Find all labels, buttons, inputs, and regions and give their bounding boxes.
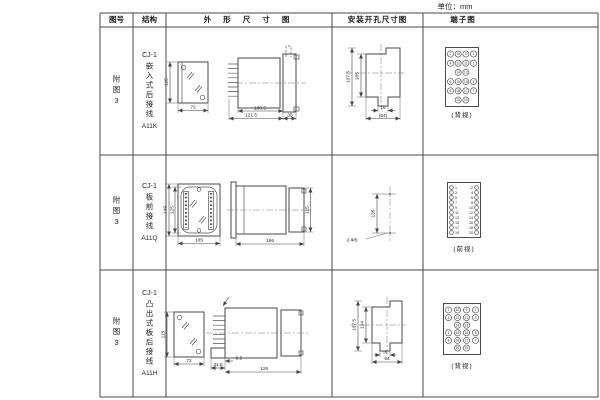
svg-text:18: 18 xyxy=(456,339,460,343)
svg-text:10: 10 xyxy=(456,308,460,312)
model-code-label: A11H xyxy=(142,370,158,377)
dim-mount-width: (64) xyxy=(379,113,388,119)
dim-hole-spacing: 135 xyxy=(371,209,377,217)
svg-text:20: 20 xyxy=(456,346,460,350)
mount-type-label: 板前接线 xyxy=(144,193,155,231)
mount-type-label: 嵌入式后接线 xyxy=(144,62,155,119)
svg-text:15: 15 xyxy=(464,80,468,84)
svg-text:1: 1 xyxy=(473,52,475,56)
svg-text:10: 10 xyxy=(456,52,460,56)
svg-text:4: 4 xyxy=(448,316,450,320)
terminal-diagram-row2: 1357911131517192468101214161820 xyxy=(447,182,481,238)
svg-text:10: 10 xyxy=(469,206,473,210)
dim-mount-tab: 16 xyxy=(380,105,386,111)
svg-text:1: 1 xyxy=(475,308,477,312)
fig-no-label: 附图3 xyxy=(111,317,122,350)
row3-mounting-drawing: 107.5 104 16 64 xyxy=(350,297,406,364)
svg-text:2: 2 xyxy=(448,308,450,312)
spec-sheet-page: 115 72 100.5 121.5 35 xyxy=(0,0,600,400)
header-outline: 外 形 尺 寸 图 xyxy=(166,13,332,27)
svg-text:18: 18 xyxy=(469,226,473,230)
row2-mounting-drawing: 135 2-Φ5 xyxy=(347,186,396,244)
svg-text:14: 14 xyxy=(456,71,460,75)
row2-outline-drawing: 149 125 105 156 115 xyxy=(163,182,314,246)
header-terminal: 端子图 xyxy=(423,13,503,27)
terminal-diagram-row1: 2109141211314136161558181772019 xyxy=(445,47,479,107)
model-code-label: A11K xyxy=(142,123,157,130)
svg-text:8: 8 xyxy=(450,89,452,93)
unit-label: 单位：mm xyxy=(420,1,490,12)
terminal-diagram-row3: 2109141211314136161558181772019 xyxy=(443,303,481,355)
svg-text:20: 20 xyxy=(456,98,460,102)
structure-cell-row3: CJ-1 凸出式板后接线 A11H xyxy=(133,270,166,397)
row3-outline-drawing: 115 72 9.5 31.5 126 xyxy=(161,297,309,374)
dim-front-width: 72 xyxy=(190,105,196,111)
svg-text:11: 11 xyxy=(464,61,468,65)
svg-text:8: 8 xyxy=(471,201,473,205)
row1-outline-drawing: 115 72 100.5 121.5 35 xyxy=(164,46,307,120)
svg-text:7: 7 xyxy=(475,339,477,343)
dim-depth: 126 xyxy=(260,366,268,372)
header-fig-no: 图号 xyxy=(100,13,133,27)
svg-text:6: 6 xyxy=(450,80,452,84)
svg-text:12: 12 xyxy=(456,316,460,320)
svg-text:15: 15 xyxy=(465,331,469,335)
drawing-layer: 115 72 100.5 121.5 35 xyxy=(0,0,600,400)
svg-text:7: 7 xyxy=(473,89,475,93)
svg-text:19: 19 xyxy=(464,98,468,102)
svg-text:8: 8 xyxy=(448,339,450,343)
svg-text:12: 12 xyxy=(456,61,460,65)
dim-mount-width: 64 xyxy=(384,356,390,362)
fig-no-label: 附图3 xyxy=(111,196,122,229)
dim-width: 105 xyxy=(195,238,203,244)
svg-text:19: 19 xyxy=(465,346,469,350)
svg-text:16: 16 xyxy=(469,221,473,225)
dim-height: 115 xyxy=(305,206,311,214)
svg-text:15: 15 xyxy=(455,221,459,225)
svg-text:13: 13 xyxy=(455,216,459,220)
svg-text:5: 5 xyxy=(475,331,477,335)
svg-text:4: 4 xyxy=(471,191,473,195)
svg-text:9: 9 xyxy=(465,52,467,56)
header-mounting: 安装开孔尺寸图 xyxy=(332,13,423,27)
dim-depth: 100.5 xyxy=(254,106,266,112)
terminal-view-label-row1: (背视) xyxy=(440,109,484,119)
svg-text:14: 14 xyxy=(469,216,473,220)
svg-text:2: 2 xyxy=(471,186,473,190)
svg-text:18: 18 xyxy=(456,89,460,93)
svg-text:16: 16 xyxy=(456,331,460,335)
structure-cell-row2: CJ-1 板前接线 A11Q xyxy=(133,155,166,270)
dim-front: 35 xyxy=(287,113,293,119)
dim-mount-tab: 16 xyxy=(383,351,387,355)
svg-text:1: 1 xyxy=(455,186,457,190)
svg-text:3: 3 xyxy=(475,316,477,320)
terminal-view-label-row3: (背视) xyxy=(440,360,484,370)
fig-no-label: 附图3 xyxy=(111,75,122,108)
svg-text:17: 17 xyxy=(464,89,468,93)
header-structure: 结构 xyxy=(133,13,166,27)
model-label: CJ-1 xyxy=(142,290,157,297)
mount-type-label: 凸出式板后接线 xyxy=(144,300,155,367)
model-code-label: A11Q xyxy=(141,235,157,242)
svg-text:16: 16 xyxy=(456,80,460,84)
fig-no-cell-row2: 附图3 xyxy=(100,155,133,270)
svg-text:11: 11 xyxy=(455,211,459,215)
dim-front-width: 72 xyxy=(186,358,192,364)
svg-text:19: 19 xyxy=(455,231,459,235)
svg-text:2: 2 xyxy=(450,52,452,56)
terminal-view-label-row2: (前视) xyxy=(442,243,486,253)
svg-text:5: 5 xyxy=(455,196,457,200)
structure-cell-row1: CJ-1 嵌入式后接线 A11K xyxy=(133,27,166,155)
dim-inner-h: 125 xyxy=(170,206,176,214)
dim-front: 31.5 xyxy=(213,362,223,368)
svg-text:12: 12 xyxy=(469,211,473,215)
svg-text:7: 7 xyxy=(455,201,457,205)
dim-mount-outer: 107.5 xyxy=(346,71,352,83)
svg-text:17: 17 xyxy=(455,226,459,230)
svg-text:14: 14 xyxy=(456,323,460,327)
row1-mounting-drawing: 107.5 105 16 (64) xyxy=(346,44,405,120)
model-label: CJ-1 xyxy=(142,183,157,190)
svg-text:3: 3 xyxy=(473,61,475,65)
svg-text:13: 13 xyxy=(464,71,468,75)
svg-text:13: 13 xyxy=(465,323,469,327)
svg-text:4: 4 xyxy=(450,61,452,65)
dim-offset: 9.5 xyxy=(236,356,243,362)
svg-text:6: 6 xyxy=(471,196,473,200)
dim-total: 121.5 xyxy=(245,113,257,119)
svg-text:11: 11 xyxy=(465,316,469,320)
dim-depth: 156 xyxy=(266,238,274,244)
svg-text:9: 9 xyxy=(455,206,457,210)
svg-text:3: 3 xyxy=(455,191,457,195)
svg-text:6: 6 xyxy=(448,331,450,335)
fig-no-cell-row1: 附图3 xyxy=(100,27,133,155)
svg-text:9: 9 xyxy=(466,308,468,312)
svg-text:5: 5 xyxy=(473,80,475,84)
svg-text:17: 17 xyxy=(465,339,469,343)
fig-no-cell-row3: 附图3 xyxy=(100,270,133,397)
dim-hole-label: 2-Φ5 xyxy=(347,238,358,244)
model-label: CJ-1 xyxy=(142,52,157,59)
svg-text:20: 20 xyxy=(469,231,473,235)
